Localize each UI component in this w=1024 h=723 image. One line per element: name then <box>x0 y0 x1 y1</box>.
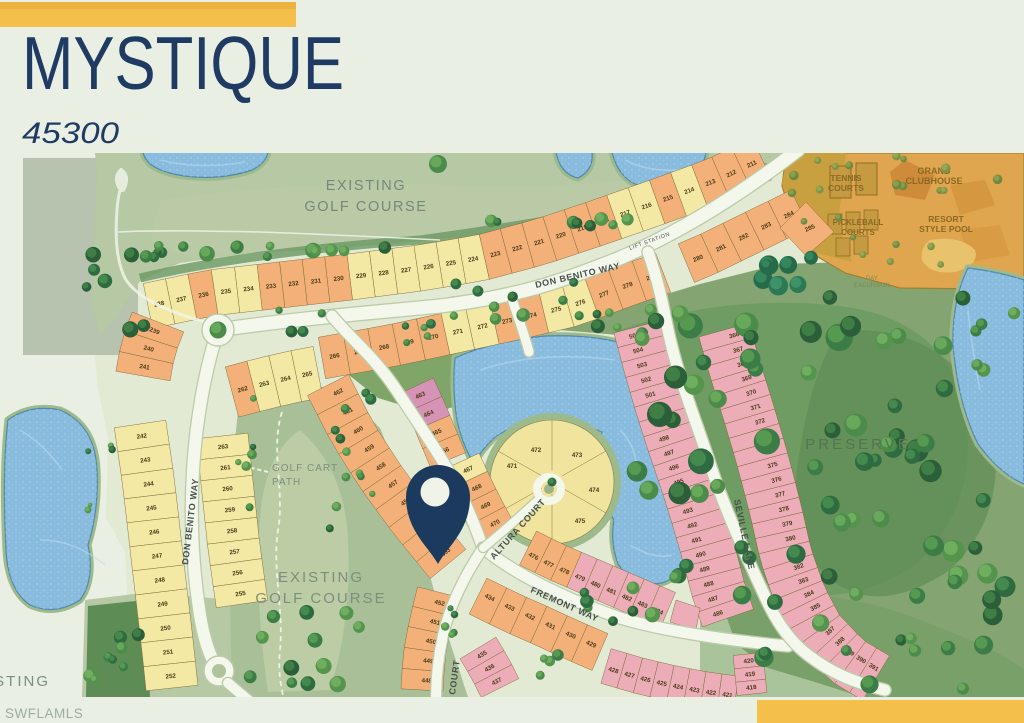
svg-text:473: 473 <box>572 452 583 459</box>
svg-text:PRESERVE: PRESERVE <box>805 436 910 453</box>
svg-text:235: 235 <box>220 288 232 296</box>
svg-text:SWFLAMLS: SWFLAMLS <box>5 706 83 721</box>
svg-text:418: 418 <box>746 684 758 692</box>
svg-text:255: 255 <box>235 590 247 598</box>
svg-text:474: 474 <box>589 487 600 494</box>
svg-text:246: 246 <box>149 528 161 536</box>
svg-text:EXISTING: EXISTING <box>0 673 50 690</box>
svg-text:COURTS: COURTS <box>828 183 864 193</box>
svg-text:CLUBHOUSE: CLUBHOUSE <box>905 176 962 186</box>
svg-text:MYSTIQUE: MYSTIQUE <box>22 21 344 105</box>
svg-text:232: 232 <box>288 280 300 288</box>
svg-text:RESORT: RESORT <box>928 214 964 224</box>
svg-text:EXISTING: EXISTING <box>326 178 406 194</box>
svg-text:256: 256 <box>232 569 244 577</box>
svg-text:GOLF COURSE: GOLF COURSE <box>304 199 427 215</box>
svg-text:GOLF CART: GOLF CART <box>272 463 338 474</box>
svg-text:EXCURSION: EXCURSION <box>854 283 890 289</box>
svg-text:228: 228 <box>378 269 390 277</box>
svg-text:227: 227 <box>401 266 413 274</box>
svg-text:260: 260 <box>222 485 234 493</box>
svg-text:257: 257 <box>229 548 241 556</box>
svg-text:263: 263 <box>218 443 230 451</box>
svg-text:DAY: DAY <box>866 276 878 282</box>
svg-text:248: 248 <box>154 576 166 584</box>
svg-text:475: 475 <box>575 518 586 525</box>
svg-text:231: 231 <box>311 277 323 285</box>
svg-text:EXISTING: EXISTING <box>278 569 364 586</box>
svg-text:TENNIS: TENNIS <box>830 173 862 183</box>
svg-text:420: 420 <box>743 657 755 665</box>
svg-text:243: 243 <box>140 456 152 464</box>
svg-text:STYLE POOL: STYLE POOL <box>919 224 973 234</box>
svg-text:249: 249 <box>157 600 169 608</box>
svg-text:234: 234 <box>243 285 255 293</box>
svg-text:472: 472 <box>531 447 542 454</box>
svg-text:229: 229 <box>356 272 368 280</box>
svg-text:471: 471 <box>507 463 518 470</box>
svg-text:45300: 45300 <box>22 117 119 150</box>
svg-text:247: 247 <box>152 552 164 560</box>
svg-text:242: 242 <box>136 432 148 440</box>
svg-text:250: 250 <box>160 624 172 632</box>
svg-text:261: 261 <box>220 464 232 472</box>
svg-text:422: 422 <box>705 689 717 697</box>
svg-text:244: 244 <box>143 480 155 488</box>
svg-text:230: 230 <box>333 275 345 283</box>
svg-text:419: 419 <box>745 671 757 679</box>
svg-text:258: 258 <box>227 527 239 535</box>
svg-text:252: 252 <box>165 673 177 681</box>
svg-text:PATH: PATH <box>272 477 301 488</box>
svg-text:COURTS: COURTS <box>841 228 875 237</box>
svg-text:245: 245 <box>146 504 158 512</box>
svg-text:233: 233 <box>266 283 278 291</box>
svg-text:GOLF COURSE: GOLF COURSE <box>255 590 386 607</box>
svg-text:251: 251 <box>163 649 175 657</box>
svg-text:259: 259 <box>224 506 236 514</box>
